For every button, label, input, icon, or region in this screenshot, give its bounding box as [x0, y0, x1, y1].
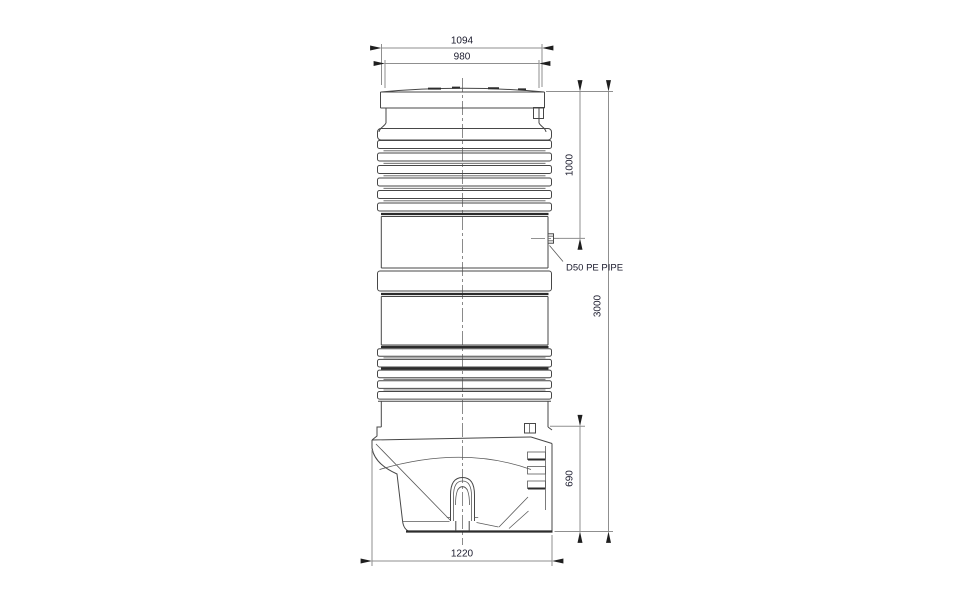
collar-latch: [525, 424, 536, 434]
dim-label-980: 980: [454, 52, 471, 63]
dim-label-690: 690: [565, 470, 576, 487]
dim-label-1220: 1220: [451, 549, 474, 560]
leader-line: [550, 246, 564, 262]
technical-drawing: 1094 980 1000 3000 690 1220 D50 PE PIPE: [0, 0, 976, 600]
dim-label-1094: 1094: [451, 36, 474, 47]
smooth-module-middle: [381, 297, 549, 348]
dim-label-3000: 3000: [593, 294, 604, 317]
dim-sump-height: 690: [565, 426, 581, 531]
module-joint-ring: [378, 271, 552, 294]
extension-lines: [372, 92, 613, 567]
dim-cover-inner-width: 980: [385, 52, 539, 89]
dim-inlet-depth: 1000: [565, 92, 581, 239]
dim-sump-width: 1220: [372, 549, 552, 562]
ladder-rungs: [528, 452, 546, 489]
base-dome-arc: [380, 457, 532, 469]
cover-neck: [378, 108, 552, 141]
corrugated-section-upper: [378, 141, 552, 215]
dim-label-1000: 1000: [565, 153, 576, 176]
bottom-collar: [381, 401, 548, 433]
inlet-pipe-label: D50 PE PIPE: [566, 263, 623, 274]
corrugated-section-lower: [378, 349, 552, 402]
dim-overall-height: 3000: [593, 92, 609, 532]
inlet-pipe-callout: D50 PE PIPE: [550, 246, 624, 274]
drawing-canvas: 1094 980 1000 3000 690 1220 D50 PE PIPE: [0, 0, 976, 600]
smooth-module-upper: [381, 217, 559, 269]
